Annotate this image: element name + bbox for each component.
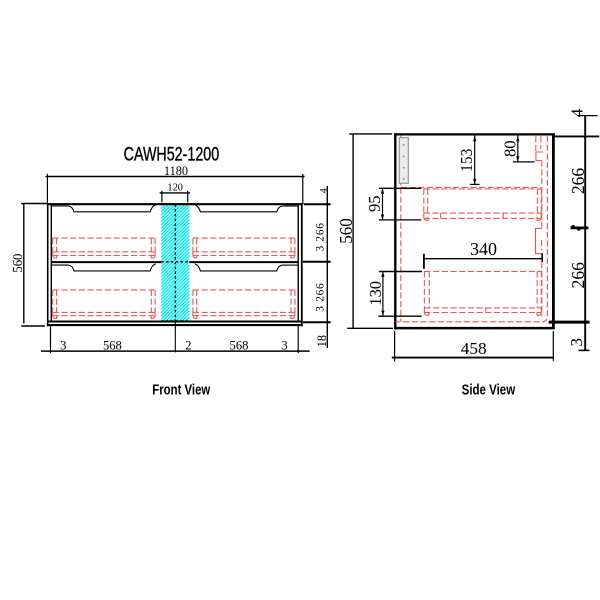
- svg-text:560: 560: [336, 218, 356, 244]
- svg-text:3 266: 3 266: [315, 223, 327, 252]
- svg-text:568: 568: [103, 339, 122, 353]
- svg-text:266: 266: [568, 168, 588, 195]
- svg-text:3: 3: [567, 338, 586, 347]
- svg-text:Side View: Side View: [462, 383, 516, 399]
- svg-text:568: 568: [230, 339, 249, 353]
- svg-text:95: 95: [365, 196, 384, 213]
- svg-text:18: 18: [315, 335, 329, 347]
- svg-text:2: 2: [185, 339, 191, 353]
- svg-text:80: 80: [501, 140, 520, 157]
- svg-text:3: 3: [60, 339, 66, 353]
- svg-text:560: 560: [10, 253, 25, 272]
- svg-text:4: 4: [567, 108, 586, 117]
- svg-text:1180: 1180: [164, 163, 188, 178]
- svg-text:4: 4: [318, 188, 329, 193]
- svg-text:153: 153: [457, 149, 476, 172]
- svg-text:Front View: Front View: [152, 383, 210, 399]
- svg-text:266: 266: [568, 262, 588, 289]
- svg-text:130: 130: [366, 281, 385, 306]
- svg-text:458: 458: [461, 339, 487, 358]
- svg-text:3: 3: [281, 339, 287, 353]
- svg-text:120: 120: [167, 182, 183, 193]
- svg-text:3 266: 3 266: [315, 283, 327, 312]
- svg-text:340: 340: [470, 239, 497, 259]
